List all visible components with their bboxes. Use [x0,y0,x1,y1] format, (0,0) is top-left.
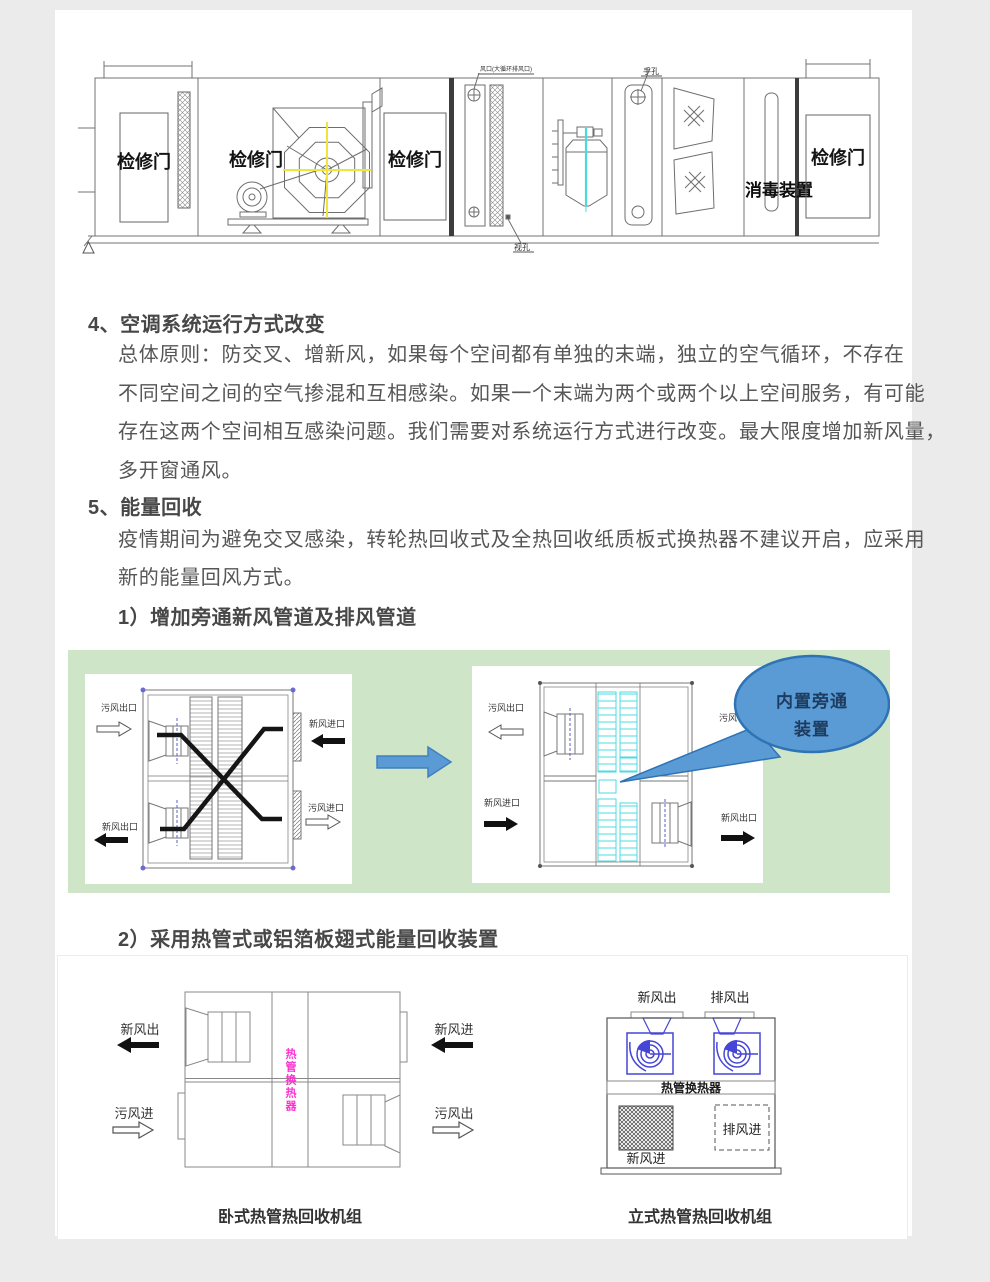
heat-pipe-core-label: 热管换热器 [282,1048,298,1118]
section4-line-4: 多开窗通风。 [118,454,242,483]
annotation-label: 风口(大循环排风口) [480,65,532,73]
label-fresh-in: 新风进 [626,1151,665,1166]
louver-section [674,88,714,214]
door-label-3: 检修门 [388,149,442,170]
section4-line-3: 存在这两个空间相互感染问题。我们需要对系统运行方式进行改变。最大限度增加新风量， [118,415,946,444]
outline-arrow-right-icon [433,1122,473,1138]
solid-arrow-left-icon [117,1037,159,1053]
section4-line-2: 不同空间之间的空气掺混和互相感染。如果一个末端为两个或两个以上空间服务，有可能 [118,377,925,406]
outline-arrow-right-icon [113,1122,153,1138]
label-fresh-out: 新风出口 [102,821,138,832]
door-label-2: 检修门 [229,149,283,170]
section4-heading: 4、空调系统运行方式改变 [88,308,325,337]
label-foul-in: 污风进 [114,1106,153,1121]
label-foul-in: 污风进口 [308,802,344,813]
label-fresh-in: 新风进 [434,1022,473,1037]
fresh-air-filter [619,1106,673,1150]
label-exhaust-out: 排风出 [710,990,749,1005]
label-heat-pipe-exchanger: 热管换热器 [661,1080,722,1095]
ahu-diagram: 检修门 检修门 [78,50,890,262]
section5-heading: 5、能量回收 [88,491,202,520]
disinfection-label: 消毒装置 [745,180,813,200]
bubble-text-line2: 装置 [742,715,882,740]
hand-hole-label: 手孔 [643,66,659,76]
label-fresh-out: 新风出 [120,1022,159,1037]
label-fresh-in: 新风进口 [309,718,345,729]
label-foul-out: 污风出 [434,1106,473,1121]
thick-divider [795,78,799,236]
sight-hole-label: 视孔 [514,242,530,252]
caption-vertical-unit: 立式热管热回收机组 [590,1203,810,1227]
figure2-diagram: 新风出 污风进 新风进 污风出 [57,955,908,1240]
section4-line-1: 总体原则：防交叉、增新风，如果每个空间都有单独的末端，独立的空气循环，不存在 [118,338,905,367]
label-foul-out: 污风出口 [101,702,137,713]
label-fresh-in: 新风进口 [484,797,520,808]
humidifier-section [552,120,607,212]
label-fresh-out: 新风出 [637,990,676,1005]
label-fresh-out: 新风出口 [721,812,757,823]
fan-wedge [637,1040,650,1054]
figure1-right-card [472,666,763,883]
coil-section [625,68,662,225]
caption-horizontal-unit: 卧式热管热回收机组 [180,1203,400,1227]
transition-arrow-icon [377,747,451,777]
section5-line-1: 疫情期间为避免交叉感染，转轮热回收式及全热回收纸质板式换热器不建议开启，应采用 [118,523,925,552]
label-foul-partial: 污风 [719,712,737,723]
thick-divider [449,78,454,236]
label-exhaust-in: 排风进 [722,1122,761,1137]
section5-line-2: 新的能量回风方式。 [118,561,304,590]
door-label-4: 检修门 [811,147,865,168]
bubble-text-line1: 内置旁通 [742,687,882,712]
document-page: 检修门 检修门 [0,0,990,1282]
solid-arrow-left-icon [431,1037,473,1053]
section5-sub2-heading: 2）采用热管式或铝箔板翅式能量回收装置 [118,923,499,952]
fan-wedge [724,1040,737,1054]
door-label-1: 检修门 [117,151,171,172]
section5-sub1-heading: 1）增加旁通新风管道及排风管道 [118,601,417,630]
label-foul-out: 污风出口 [488,702,524,713]
filter-panel-section [465,73,534,252]
